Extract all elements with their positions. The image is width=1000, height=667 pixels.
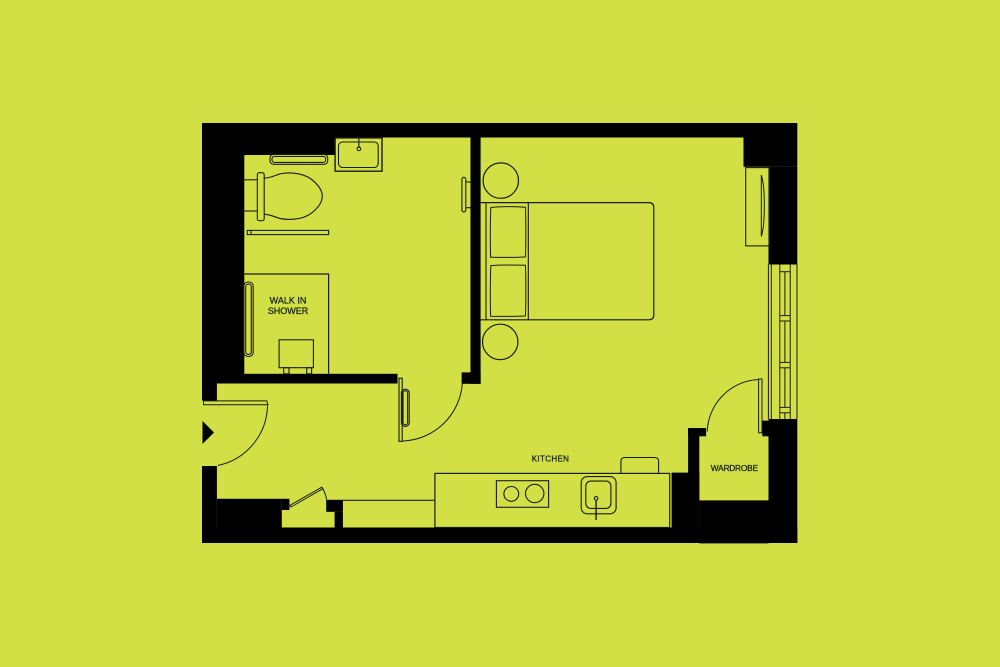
- svg-text:WARDROBE: WARDROBE: [711, 463, 759, 473]
- svg-text:WALK IN: WALK IN: [270, 295, 307, 305]
- svg-text:KITCHEN: KITCHEN: [532, 454, 570, 463]
- svg-text:SHOWER: SHOWER: [268, 306, 309, 316]
